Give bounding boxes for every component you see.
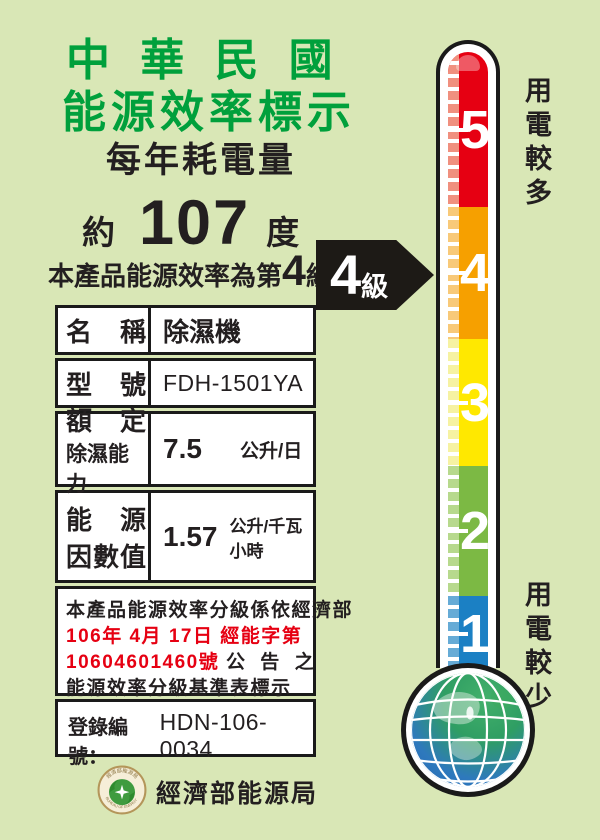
legal-note-line3-red: 10604601460號	[66, 652, 219, 673]
legal-note-line1: 本產品能源效率分級係依經濟部	[66, 598, 307, 624]
legal-note-line3: 10604601460號 公 告 之	[66, 650, 307, 676]
label-title-line2: 能源效率標示	[62, 76, 356, 140]
level-4-number: 4	[460, 246, 488, 300]
spec-table: 名 稱 除濕機 型 號 FDH-1501YA 額 定 除濕能力 7.5 公升/日…	[55, 305, 316, 757]
capacity-unit: 公升/日	[240, 436, 302, 463]
grade-badge-arrow: 4 級	[316, 240, 434, 310]
annual-consumption-heading: 每年耗電量	[106, 132, 296, 183]
name-label: 名 稱	[66, 312, 148, 349]
capacity-label-line1: 額 定	[66, 401, 148, 438]
table-row-capacity: 額 定 除濕能力 7.5 公升/日	[55, 411, 316, 487]
level-4-segment: 4	[448, 207, 488, 339]
bureau-of-energy-seal-icon: 經濟部能源局 BUREAU OF ENERGY	[97, 765, 147, 815]
legal-note: 本產品能源效率分級係依經濟部 106年 4月 17日 經能字第 10604601…	[55, 586, 316, 696]
level-5-number: 5	[460, 103, 488, 157]
thermometer-scale: 5 4 3 2 1	[448, 52, 488, 672]
table-row-energy-factor: 能 源 因數值 1.57 公升/千瓦小時	[55, 490, 316, 583]
agency-name: 經濟部能源局	[156, 774, 318, 810]
annual-consumption-line: 約 107 度	[82, 192, 299, 255]
legal-note-line2: 106年 4月 17日 經能字第	[66, 624, 307, 650]
model-label: 型 號	[66, 365, 148, 402]
globe-icon	[398, 660, 538, 800]
table-row-name: 名 稱 除濕機	[55, 305, 316, 355]
level-3-number: 3	[460, 376, 488, 430]
rating-sentence-prefix: 本產品能源效率為第	[48, 256, 282, 293]
rating-sentence: 本產品能源效率為第 4 級	[48, 250, 332, 293]
level-1-number: 1	[460, 607, 488, 661]
capacity-label-line2: 除濕能力	[66, 438, 148, 498]
registration-label: 登錄編號：	[68, 711, 160, 769]
registration-row: 登錄編號： HDN-106-0034	[55, 699, 316, 757]
badge-grade: 4	[330, 247, 361, 303]
badge-grade-suffix: 級	[361, 265, 388, 304]
energy-efficiency-label: 中 華 民 國 能源效率標示 每年耗電量 約 107 度 本產品能源效率為第 4…	[0, 0, 600, 840]
level-3-segment: 3	[448, 339, 488, 466]
energy-factor-value: 1.57	[163, 521, 218, 553]
registration-number: HDN-106-0034	[160, 709, 307, 763]
energy-factor-label-line1: 能 源	[66, 500, 148, 537]
consumption-value: 107	[139, 192, 250, 255]
rating-sentence-grade: 4	[282, 250, 306, 293]
high-usage-label: 用電較多	[517, 76, 556, 212]
name-value: 除濕機	[163, 312, 241, 349]
level-5-segment: 5	[448, 52, 488, 207]
approx-prefix: 約	[82, 206, 115, 254]
model-value: FDH-1501YA	[163, 370, 303, 397]
level-2-segment: 2	[448, 466, 488, 596]
energy-factor-label-line2: 因數值	[66, 537, 148, 574]
legal-note-line4: 能源效率分級基準表標示	[66, 676, 307, 702]
level-2-number: 2	[460, 504, 488, 558]
legal-note-line3-black: 公 告 之	[226, 652, 319, 673]
energy-factor-unit: 公升/千瓦小時	[230, 512, 314, 562]
capacity-value: 7.5	[163, 433, 202, 465]
